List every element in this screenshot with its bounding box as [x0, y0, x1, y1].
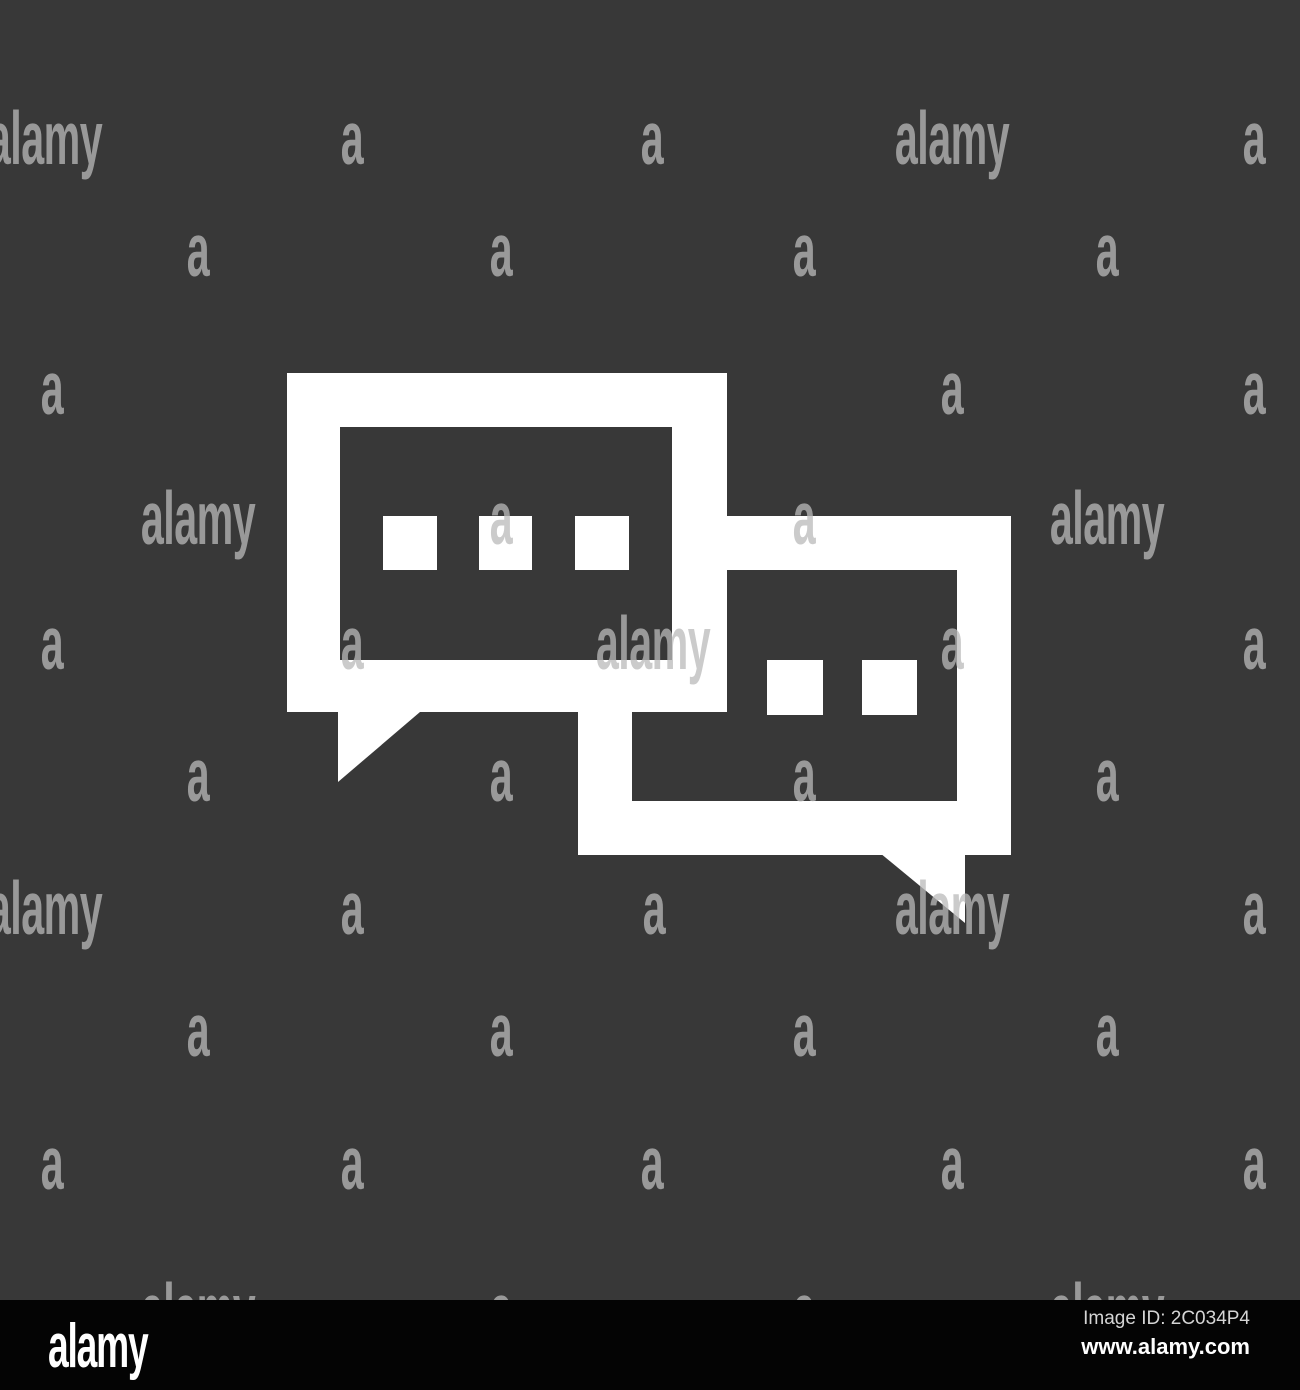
watermark-letter: a — [341, 606, 363, 681]
watermark-letter: a — [187, 738, 209, 813]
watermark-word: alamy — [1050, 481, 1164, 556]
watermark-letter: a — [187, 993, 209, 1068]
watermark-letter: a — [641, 101, 663, 176]
watermark-word: alamy — [895, 871, 1009, 946]
watermark-word: alamy — [895, 101, 1009, 176]
watermark-letter: a — [1096, 738, 1118, 813]
watermark-letter: a — [793, 213, 815, 288]
watermark-letter: a — [1096, 213, 1118, 288]
watermark-letter: a — [41, 1126, 63, 1201]
watermark-letter: a — [641, 1126, 663, 1201]
watermark-letter: a — [490, 993, 512, 1068]
watermark-letter: a — [341, 1126, 363, 1201]
alamy-logo: alamy — [48, 1316, 147, 1378]
watermark-letter: a — [341, 871, 363, 946]
watermark-letter: a — [643, 871, 665, 946]
alamy-url-text: www.alamy.com — [1081, 1334, 1250, 1360]
watermark-letter: a — [1243, 871, 1265, 946]
stock-image-canvas: alamyaaalamyaaaaaaaaalamyaaalamyaaalamya… — [0, 0, 1300, 1390]
watermark-letter: a — [341, 101, 363, 176]
watermark-letter: a — [41, 606, 63, 681]
watermark-letter: a — [490, 481, 512, 556]
watermark-letter: a — [793, 993, 815, 1068]
watermark-letter: a — [187, 213, 209, 288]
watermark-letter: a — [1243, 351, 1265, 426]
watermark-letter: a — [1096, 993, 1118, 1068]
watermark-word: alamy — [141, 481, 255, 556]
watermark-letter: a — [941, 606, 963, 681]
watermark-letter: a — [941, 351, 963, 426]
watermark-letter: a — [793, 481, 815, 556]
watermark-letter: a — [1243, 606, 1265, 681]
watermark-word: alamy — [0, 871, 102, 946]
watermark-letter: a — [490, 738, 512, 813]
watermark-letter: a — [793, 738, 815, 813]
footer-bar: alamy Image ID: 2C034P4 www.alamy.com — [0, 1300, 1300, 1390]
watermark-layer: alamyaaalamyaaaaaaaaalamyaaalamyaaalamya… — [0, 0, 1300, 1390]
watermark-letter: a — [41, 351, 63, 426]
watermark-word: alamy — [0, 101, 102, 176]
watermark-letter: a — [941, 1126, 963, 1201]
watermark-letter: a — [1243, 1126, 1265, 1201]
watermark-letter: a — [490, 213, 512, 288]
watermark-word: alamy — [596, 606, 710, 681]
image-id-text: Image ID: 2C034P4 — [1083, 1308, 1250, 1330]
watermark-letter: a — [1243, 101, 1265, 176]
